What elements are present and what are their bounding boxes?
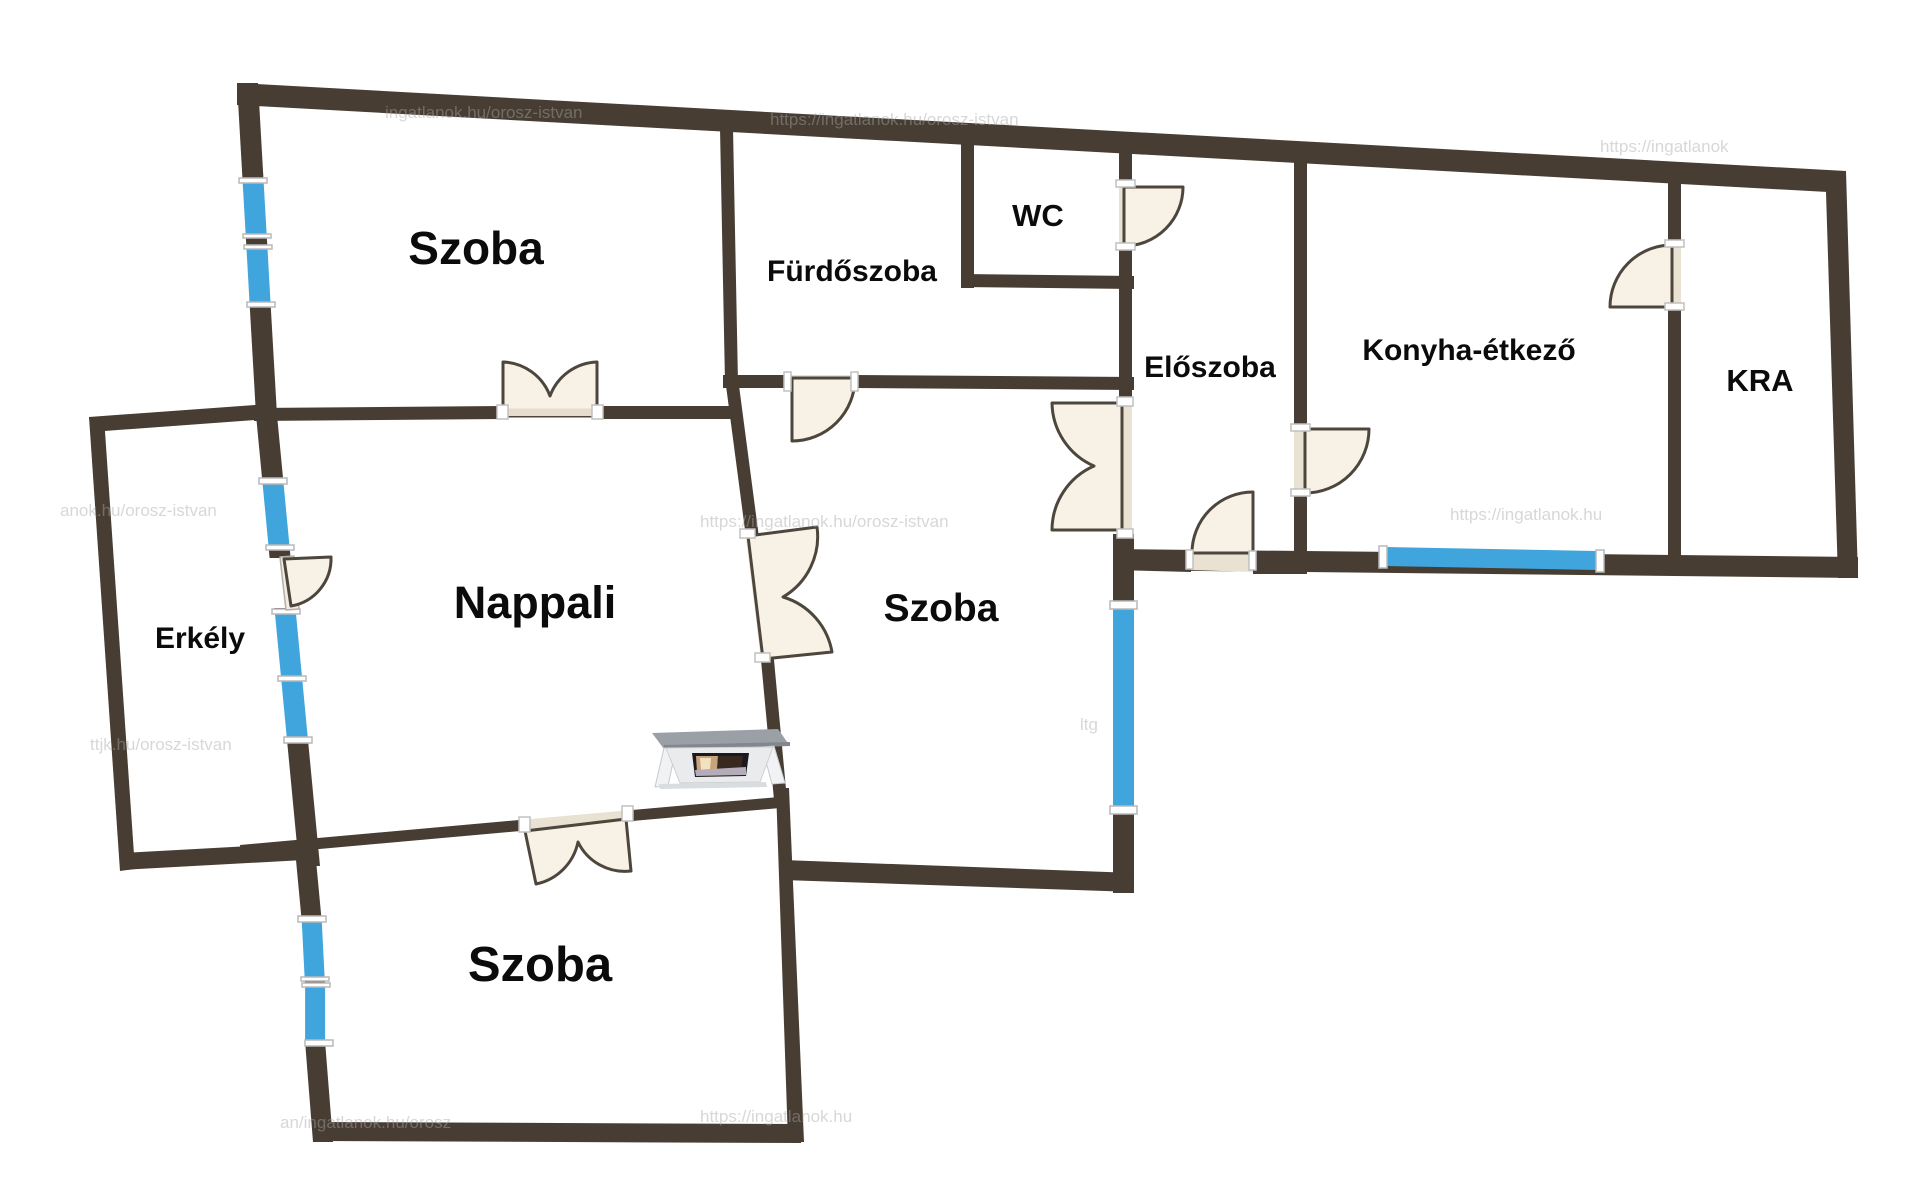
svg-text:Fürdőszoba: Fürdőszoba [767,255,937,288]
svg-text:anok.hu/orosz-istvan: anok.hu/orosz-istvan [60,501,217,520]
svg-text:Nappali: Nappali [454,577,617,628]
svg-text:ttjk.hu/orosz-istvan: ttjk.hu/orosz-istvan [90,735,232,754]
svg-text:ltg: ltg [1080,715,1098,734]
svg-text:an/ingatlanok.hu/orosz: an/ingatlanok.hu/orosz [280,1113,451,1132]
svg-text:https://ingatlanok: https://ingatlanok [1600,137,1729,156]
svg-text:Konyha-étkező: Konyha-étkező [1362,334,1575,367]
svg-text:KRA: KRA [1726,363,1793,398]
svg-text:https://ingatlanok.hu/orosz-is: https://ingatlanok.hu/orosz-istvan [770,110,1019,129]
svg-text:Erkély: Erkély [155,622,245,655]
svg-text:https://ingatlanok.hu: https://ingatlanok.hu [700,1107,852,1126]
svg-text:Szoba: Szoba [884,587,999,630]
svg-text:Előszoba: Előszoba [1144,351,1276,384]
svg-text:Szoba: Szoba [408,222,544,274]
svg-text:https://ingatlanok.hu: https://ingatlanok.hu [1450,505,1602,524]
svg-text:WC: WC [1012,198,1064,233]
svg-text:https://ingatlanok.hu/orosz-is: https://ingatlanok.hu/orosz-istvan [700,512,949,531]
svg-text:ingatlanok.hu/orosz-istvan: ingatlanok.hu/orosz-istvan [385,103,583,122]
svg-text:Szoba: Szoba [468,938,613,992]
